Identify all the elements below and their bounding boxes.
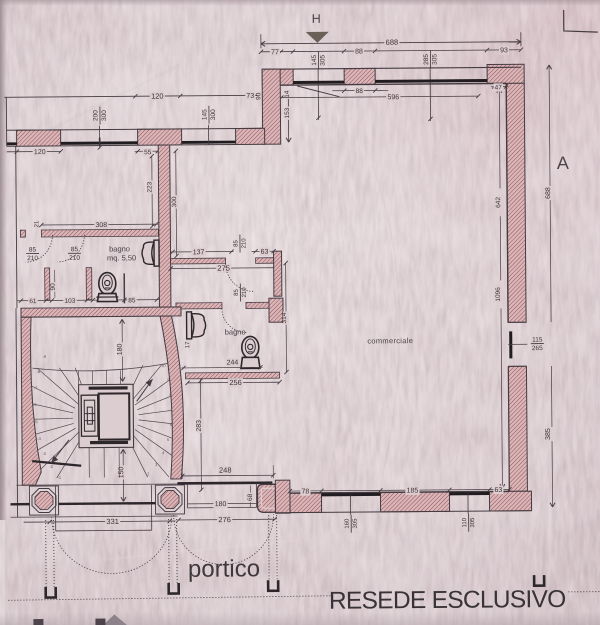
svg-text:300: 300 bbox=[101, 110, 108, 121]
svg-text:688: 688 bbox=[386, 38, 399, 47]
svg-text:85: 85 bbox=[29, 247, 37, 254]
svg-text:commerciale: commerciale bbox=[367, 336, 413, 345]
svg-text:210: 210 bbox=[27, 255, 38, 262]
svg-text:85: 85 bbox=[128, 297, 136, 304]
svg-text:78: 78 bbox=[302, 488, 310, 495]
svg-text:88: 88 bbox=[355, 48, 363, 55]
svg-text:180: 180 bbox=[215, 501, 227, 508]
svg-text:265: 265 bbox=[532, 345, 543, 352]
svg-text:103: 103 bbox=[64, 298, 75, 305]
svg-text:85: 85 bbox=[233, 239, 239, 246]
svg-text:115: 115 bbox=[532, 337, 543, 344]
svg-text:14: 14 bbox=[284, 90, 291, 98]
svg-text:90: 90 bbox=[255, 92, 262, 100]
svg-text:276: 276 bbox=[218, 515, 231, 524]
svg-text:305: 305 bbox=[431, 54, 438, 65]
svg-text:210: 210 bbox=[241, 238, 247, 249]
svg-text:21: 21 bbox=[34, 220, 40, 227]
svg-text:47: 47 bbox=[495, 84, 503, 91]
svg-text:305: 305 bbox=[470, 517, 476, 528]
svg-text:93: 93 bbox=[500, 47, 508, 54]
svg-text:145: 145 bbox=[311, 55, 318, 66]
svg-text:63: 63 bbox=[494, 487, 502, 494]
svg-text:210: 210 bbox=[69, 255, 80, 262]
svg-text:mq. 5,50: mq. 5,50 bbox=[107, 253, 136, 262]
svg-text:314: 314 bbox=[281, 312, 288, 323]
svg-text:85: 85 bbox=[71, 246, 79, 253]
svg-text:137: 137 bbox=[193, 249, 205, 256]
svg-text:77: 77 bbox=[271, 49, 279, 56]
svg-text:bagno: bagno bbox=[109, 244, 130, 253]
svg-text:248: 248 bbox=[219, 466, 232, 475]
svg-text:bagno: bagno bbox=[225, 327, 246, 336]
svg-text:596: 596 bbox=[387, 94, 399, 101]
svg-text:153: 153 bbox=[284, 107, 291, 118]
svg-text:283: 283 bbox=[196, 420, 203, 432]
svg-text:85: 85 bbox=[234, 288, 240, 295]
svg-text:244: 244 bbox=[227, 359, 239, 366]
svg-text:61: 61 bbox=[29, 298, 37, 305]
svg-text:385: 385 bbox=[545, 428, 552, 440]
svg-text:223: 223 bbox=[146, 181, 153, 192]
svg-text:200: 200 bbox=[92, 110, 99, 121]
svg-text:160: 160 bbox=[345, 518, 351, 529]
svg-text:285: 285 bbox=[423, 54, 430, 65]
svg-text:RESEDE ESCLUSIVO: RESEDE ESCLUSIVO bbox=[329, 586, 566, 615]
svg-text:185: 185 bbox=[407, 488, 419, 495]
svg-text:300: 300 bbox=[210, 109, 217, 120]
svg-text:portico: portico bbox=[188, 555, 260, 583]
svg-text:120: 120 bbox=[34, 149, 46, 156]
svg-text:305: 305 bbox=[353, 518, 359, 529]
svg-text:A: A bbox=[557, 153, 569, 173]
svg-text:331: 331 bbox=[106, 517, 119, 526]
svg-text:275: 275 bbox=[217, 264, 230, 273]
svg-text:88: 88 bbox=[356, 88, 364, 95]
svg-text:210: 210 bbox=[242, 287, 248, 298]
svg-text:1096: 1096 bbox=[495, 287, 502, 302]
svg-text:642: 642 bbox=[495, 197, 502, 208]
svg-text:120: 120 bbox=[151, 92, 164, 101]
svg-text:55: 55 bbox=[144, 149, 152, 156]
svg-text:300: 300 bbox=[171, 196, 178, 207]
svg-text:H: H bbox=[312, 12, 321, 26]
svg-text:90: 90 bbox=[50, 283, 57, 291]
svg-text:63: 63 bbox=[261, 249, 269, 256]
svg-text:110: 110 bbox=[462, 517, 468, 527]
svg-text:256: 256 bbox=[229, 378, 242, 387]
svg-text:305: 305 bbox=[319, 54, 326, 65]
svg-text:308: 308 bbox=[95, 222, 107, 229]
svg-text:145: 145 bbox=[201, 109, 208, 120]
svg-text:17: 17 bbox=[185, 341, 191, 348]
svg-text:688: 688 bbox=[545, 187, 552, 199]
svg-text:150: 150 bbox=[118, 466, 125, 478]
svg-text:73: 73 bbox=[246, 93, 254, 100]
svg-text:180: 180 bbox=[117, 343, 124, 355]
svg-text:68: 68 bbox=[247, 493, 254, 501]
